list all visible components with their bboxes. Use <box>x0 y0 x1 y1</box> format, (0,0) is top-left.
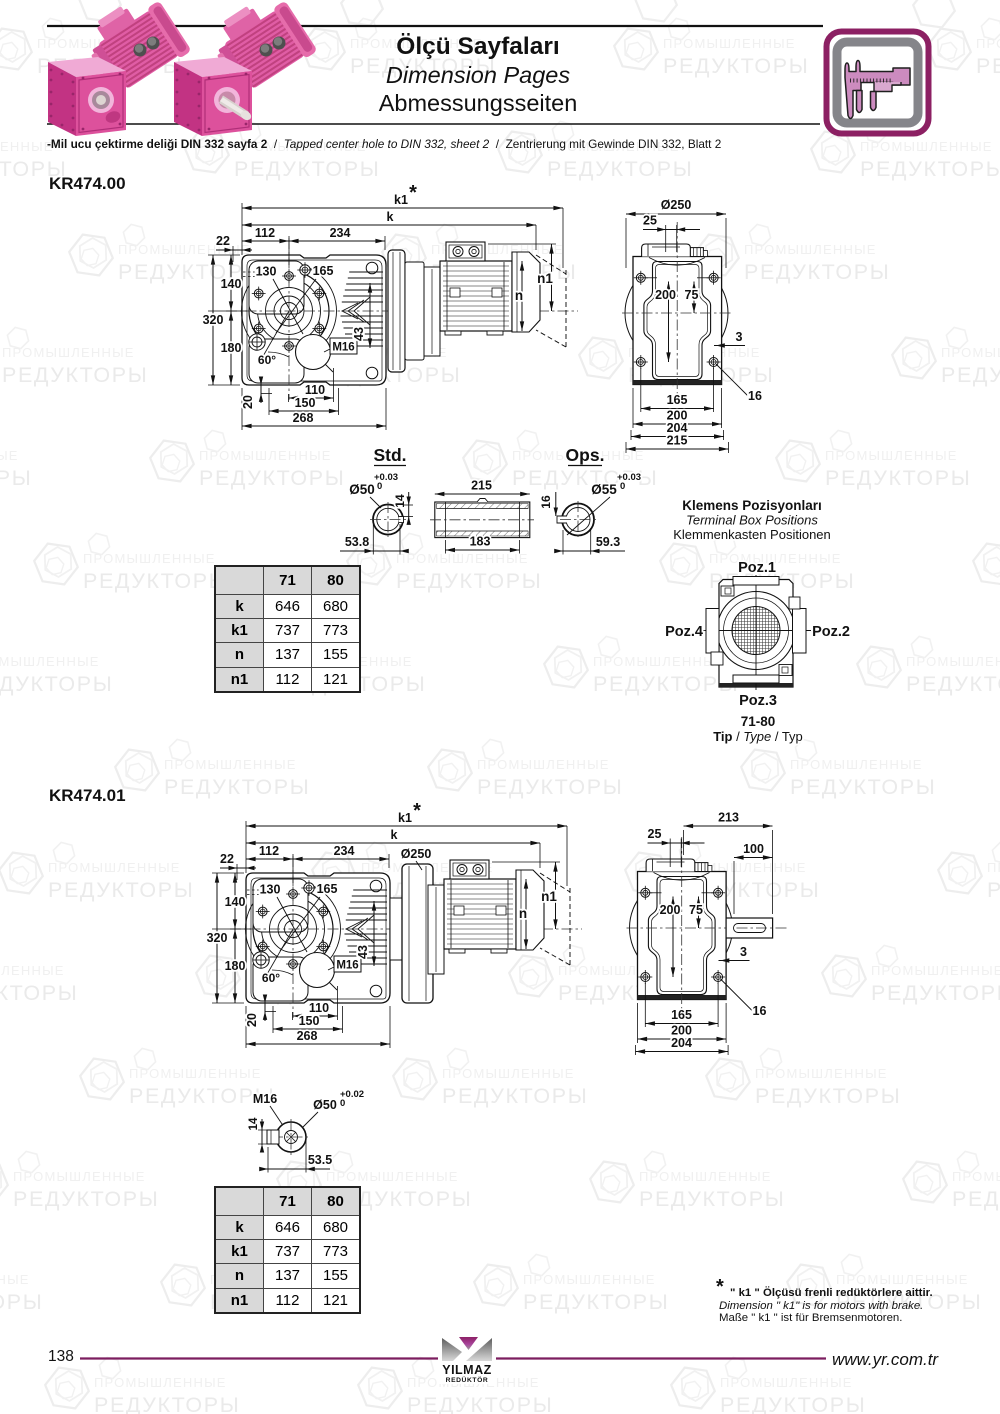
svg-text:320: 320 <box>203 313 224 327</box>
svg-text:Ø50: Ø50 <box>349 482 375 497</box>
svg-text:Poz.3: Poz.3 <box>739 693 777 709</box>
svg-text:150: 150 <box>299 1014 320 1028</box>
svg-text:180: 180 <box>221 341 242 355</box>
svg-text:n1: n1 <box>537 271 553 286</box>
svg-text:130: 130 <box>260 883 281 897</box>
svg-text:16: 16 <box>539 495 553 509</box>
svg-text:234: 234 <box>334 844 355 858</box>
svg-text:M16: M16 <box>253 1092 277 1106</box>
svg-text:204: 204 <box>671 1036 692 1050</box>
svg-text:130: 130 <box>256 265 277 279</box>
svg-text:59.3: 59.3 <box>596 535 620 549</box>
svg-text:110: 110 <box>305 383 325 397</box>
svg-text:100: 100 <box>743 842 764 856</box>
svg-text:YILMAZ: YILMAZ <box>442 1363 492 1377</box>
svg-text:71-80: 71-80 <box>741 714 776 729</box>
svg-text:M16: M16 <box>332 342 354 354</box>
svg-text:n: n <box>519 906 527 921</box>
svg-text:Ø250: Ø250 <box>401 847 432 861</box>
svg-text:215: 215 <box>471 479 492 493</box>
svg-text:Ø250: Ø250 <box>661 198 692 212</box>
svg-text:Ops.: Ops. <box>566 445 605 465</box>
svg-text:215: 215 <box>667 434 688 448</box>
svg-text:REDÜKTÖR: REDÜKTÖR <box>446 1375 489 1384</box>
svg-text:14: 14 <box>248 1117 260 1130</box>
svg-text:n: n <box>515 288 523 303</box>
svg-text:14: 14 <box>393 494 407 508</box>
svg-text:75: 75 <box>689 903 703 917</box>
svg-text:Ø50: Ø50 <box>313 1098 337 1112</box>
svg-text:*: * <box>409 182 417 204</box>
svg-text:k1: k1 <box>398 811 412 825</box>
svg-text:268: 268 <box>293 411 314 425</box>
svg-text:140: 140 <box>221 277 242 291</box>
svg-text:Poz.4: Poz.4 <box>665 624 703 640</box>
svg-text:22: 22 <box>220 852 234 866</box>
svg-text:112: 112 <box>255 226 275 240</box>
svg-text:16: 16 <box>748 389 762 403</box>
svg-text:140: 140 <box>225 895 246 909</box>
svg-text:20: 20 <box>241 395 255 409</box>
svg-text:*: * <box>413 800 421 822</box>
svg-text:320: 320 <box>207 931 228 945</box>
svg-text:0: 0 <box>620 481 625 492</box>
svg-text:Terminal Box Positions: Terminal Box Positions <box>686 513 818 528</box>
svg-text:165: 165 <box>313 264 334 278</box>
svg-text:75: 75 <box>685 288 699 302</box>
svg-text:0: 0 <box>377 481 382 492</box>
svg-text:165: 165 <box>667 393 688 407</box>
svg-text:180: 180 <box>225 959 246 973</box>
svg-text:43: 43 <box>352 327 366 341</box>
svg-text:k: k <box>391 828 398 842</box>
svg-text:3: 3 <box>736 330 743 344</box>
svg-text:Tip / Type / Typ: Tip / Type / Typ <box>713 729 803 744</box>
svg-text:268: 268 <box>297 1029 318 1043</box>
svg-text:60°: 60° <box>262 971 280 985</box>
svg-text:53.5: 53.5 <box>308 1153 332 1167</box>
svg-text:150: 150 <box>295 396 316 410</box>
svg-text:25: 25 <box>648 827 662 841</box>
svg-text:20: 20 <box>245 1013 259 1027</box>
svg-text:Klemens Pozisyonları: Klemens Pozisyonları <box>682 498 822 513</box>
svg-text:110: 110 <box>309 1001 329 1015</box>
svg-text:165: 165 <box>317 882 338 896</box>
svg-text:60°: 60° <box>258 353 276 367</box>
svg-text:112: 112 <box>259 844 279 858</box>
svg-text:3: 3 <box>740 945 747 959</box>
svg-text:25: 25 <box>643 214 657 228</box>
svg-text:183: 183 <box>470 535 491 549</box>
svg-text:213: 213 <box>718 811 739 825</box>
svg-text:234: 234 <box>330 226 351 240</box>
svg-text:43: 43 <box>356 945 370 959</box>
svg-text:k: k <box>387 210 394 224</box>
svg-text:200: 200 <box>655 288 676 302</box>
svg-text:n1: n1 <box>541 889 557 904</box>
svg-text:Std.: Std. <box>373 445 406 465</box>
svg-text:22: 22 <box>216 234 230 248</box>
svg-text:16: 16 <box>753 1004 767 1018</box>
svg-text:Ø55: Ø55 <box>591 482 617 497</box>
svg-text:Poz.1: Poz.1 <box>738 560 776 576</box>
svg-text:0: 0 <box>340 1098 345 1109</box>
svg-text:k1: k1 <box>394 193 408 207</box>
svg-text:200: 200 <box>660 903 681 917</box>
svg-text:Klemmenkasten Positionen: Klemmenkasten Positionen <box>673 527 831 542</box>
svg-text:165: 165 <box>671 1008 692 1022</box>
svg-text:53.8: 53.8 <box>345 535 369 549</box>
svg-text:Poz.2: Poz.2 <box>812 624 850 640</box>
svg-text:M16: M16 <box>336 960 358 972</box>
